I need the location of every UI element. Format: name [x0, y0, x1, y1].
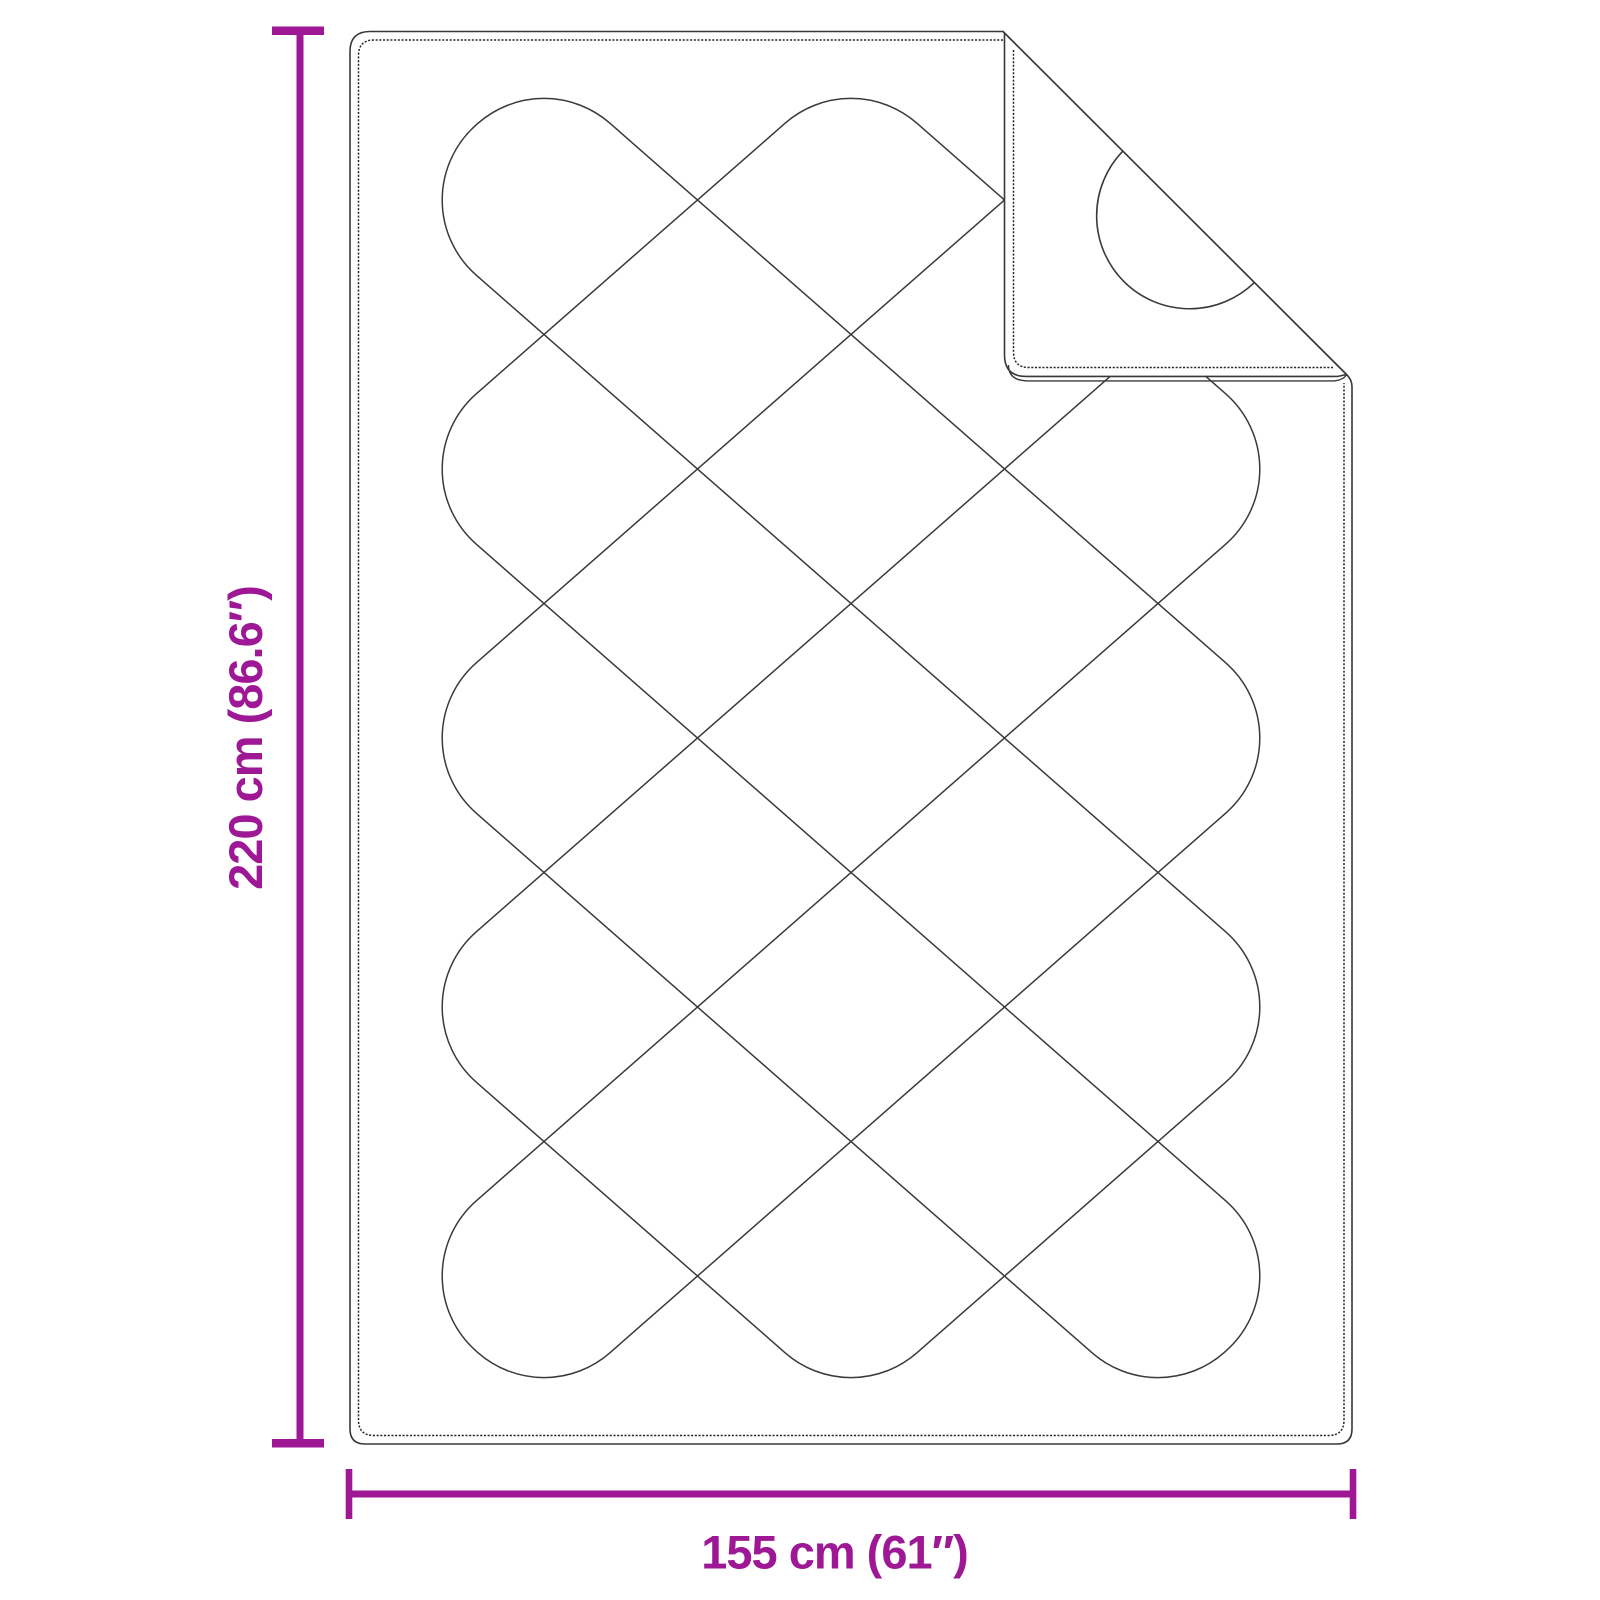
svg-text:220 cm (86.6″): 220 cm (86.6″) — [219, 586, 272, 890]
svg-text:155 cm (61″): 155 cm (61″) — [701, 1526, 968, 1579]
